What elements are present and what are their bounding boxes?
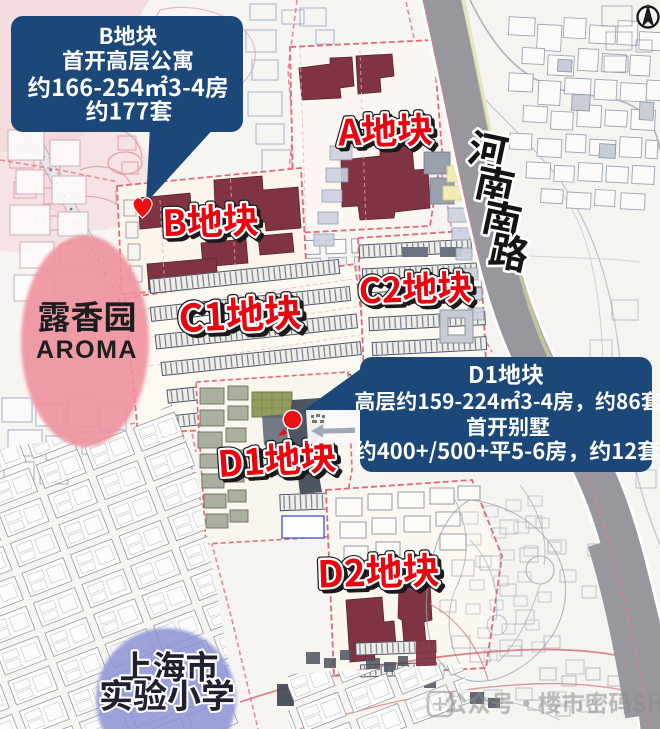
- svg-text:AROMA: AROMA: [36, 336, 138, 364]
